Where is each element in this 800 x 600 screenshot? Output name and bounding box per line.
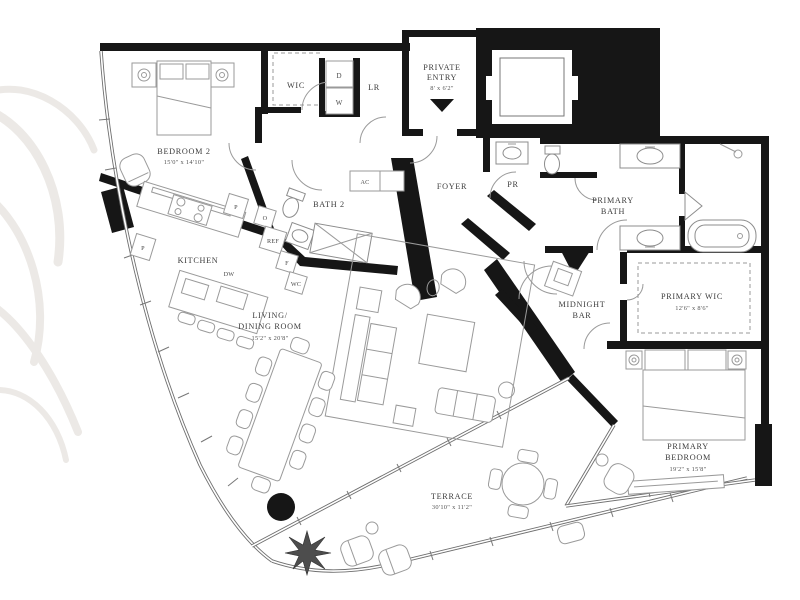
room-label-private-entry-2: ENTRY	[427, 73, 457, 82]
primary-bedroom: PRIMARY BEDROOM 19'2" x 15'8"	[596, 350, 746, 498]
floor-plan-page: BEDROOM 2 15'0" x 14'10" WIC D W LR PRIV…	[0, 0, 800, 600]
room-label-private-entry-1: PRIVATE	[423, 63, 461, 72]
room-dims-terrace: 30'10" x 11'2"	[432, 504, 472, 511]
room-label-midnight-2: BAR	[573, 311, 592, 320]
dining-chair	[288, 449, 307, 471]
bedroom2: BEDROOM 2 15'0" x 14'10"	[117, 61, 234, 203]
private-entry-left-wall	[402, 30, 409, 136]
room-dims-primary-bedroom: 19'2" x 15'8"	[670, 466, 707, 473]
terrace-table	[502, 463, 544, 505]
stool-icon	[197, 319, 216, 334]
dining-chair	[235, 408, 254, 430]
room-label-terrace: TERRACE	[431, 492, 473, 501]
elevator-car	[486, 50, 578, 124]
shower-door	[685, 192, 702, 220]
room-label-living-2: DINING ROOM	[238, 322, 301, 331]
primary-bath: PRIMARY BATH	[545, 144, 757, 252]
room-label-wic: WIC	[287, 81, 305, 90]
room-label-midnight-1: MIDNIGHT	[559, 300, 606, 309]
armchair-icon	[437, 264, 470, 296]
dining-chair	[298, 423, 317, 445]
room-label-lr: LR	[368, 83, 380, 92]
ac-closet: AC	[350, 171, 404, 191]
nightstand	[626, 351, 642, 369]
side-table	[596, 454, 608, 466]
shower-head-icon	[720, 144, 736, 152]
dining-chair	[307, 396, 326, 418]
closets-top: WIC D W LR	[273, 53, 380, 114]
headboard	[688, 350, 726, 370]
toilet-icon	[280, 188, 306, 220]
headboard	[645, 350, 685, 370]
powder-room: PR	[496, 142, 528, 189]
stool-icon	[216, 327, 235, 342]
room-dims-primary-wic: 12'6" x 8'6"	[675, 305, 709, 312]
midnight-bar: MIDNIGHT BAR	[545, 261, 606, 320]
cooktop-icon	[168, 195, 212, 226]
washer-label: W	[336, 99, 343, 107]
room-label-kitchen: KITCHEN	[178, 256, 219, 265]
room-label-primary-bath-2: BATH	[601, 207, 625, 216]
column	[101, 186, 134, 233]
room-label-pr: PR	[507, 180, 518, 189]
pantry1-label: P	[234, 204, 238, 211]
room-label-primary-bedroom-2: BEDROOM	[665, 453, 711, 462]
room-label-bedroom2: BEDROOM 2	[157, 147, 210, 156]
ac-closet-box	[350, 171, 404, 191]
room-label-primary-bedroom-1: PRIMARY	[667, 442, 709, 451]
freezer-label: F	[285, 260, 289, 267]
pantry2-label: P	[141, 245, 145, 252]
palm-watermark	[0, 89, 94, 460]
room-dims-bedroom2: 15'0" x 14'10"	[164, 159, 205, 166]
nightstand	[210, 63, 234, 87]
dining-set	[216, 327, 343, 502]
dishwasher-label: DW	[224, 271, 235, 278]
room-label-primary-wic: PRIMARY WIC	[661, 292, 723, 301]
ottoman	[393, 405, 416, 426]
wine-cooler-label: WC	[291, 281, 301, 288]
room-label-foyer: FOYER	[437, 182, 467, 191]
room-label-living-1: LIVING/	[252, 311, 287, 320]
entry-arrow-icon	[430, 99, 454, 112]
room-label-ac: AC	[361, 179, 370, 186]
room-label-bath2: BATH 2	[313, 200, 345, 209]
floor-plan-drawing: BEDROOM 2 15'0" x 14'10" WIC D W LR PRIV…	[0, 0, 800, 600]
lounge-chair	[338, 534, 375, 569]
room-dims-living: 15'2" x 20'8"	[252, 335, 289, 342]
room-dims-private-entry: 8' x 6'2"	[430, 85, 454, 92]
top-wall	[100, 43, 410, 51]
dryer-label: D	[336, 72, 341, 80]
sofa-icon	[434, 387, 496, 423]
primary-wic: PRIMARY WIC 12'6" x 8'6"	[638, 263, 750, 333]
side-table	[356, 287, 381, 312]
room-label-primary-bath-1: PRIMARY	[592, 196, 634, 205]
refrigerator-label: REF	[267, 238, 279, 245]
plant-icon	[285, 531, 331, 575]
dining-chair	[254, 356, 273, 378]
shower-icon	[310, 223, 372, 263]
oven-label: O	[263, 215, 268, 222]
column	[755, 424, 772, 486]
toilet-icon	[545, 146, 560, 154]
nightstand	[132, 63, 156, 87]
side-table	[366, 522, 378, 534]
private-entry: PRIVATE ENTRY 8' x 6'2"	[423, 63, 461, 112]
wic-shelving	[273, 53, 320, 105]
round-column	[267, 493, 295, 521]
dining-chair	[225, 435, 244, 457]
lounge-chair	[376, 543, 413, 578]
dining-chair	[244, 382, 263, 404]
coffee-table	[419, 314, 475, 372]
nightstand	[728, 351, 746, 369]
bed-icon	[643, 370, 745, 440]
